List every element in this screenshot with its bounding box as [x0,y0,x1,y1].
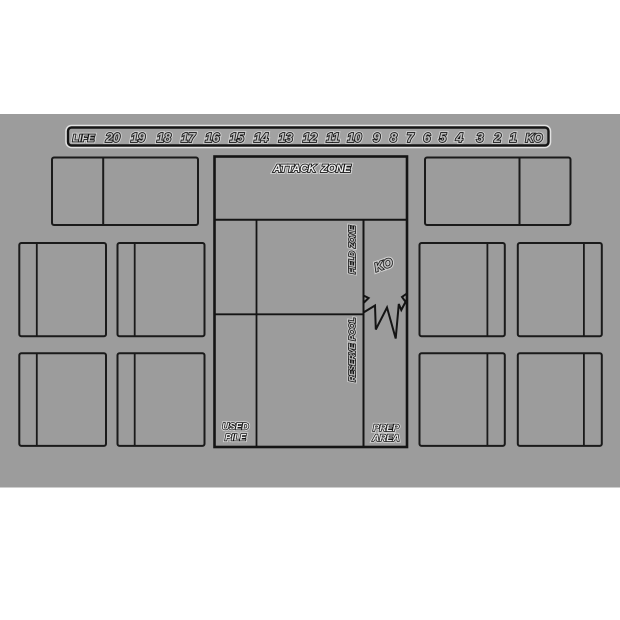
svg-text:18: 18 [157,130,172,145]
svg-text:FIELD ZONE: FIELD ZONE [347,225,357,273]
svg-text:KO: KO [525,133,542,145]
svg-text:20: 20 [105,130,121,145]
svg-text:10: 10 [347,130,362,145]
svg-text:3: 3 [476,130,484,145]
svg-text:RESERVE POOL: RESERVE POOL [347,318,357,382]
svg-text:4: 4 [455,130,464,145]
svg-text:15: 15 [230,130,245,145]
svg-text:17: 17 [181,130,196,145]
svg-text:13: 13 [278,130,293,145]
svg-text:6: 6 [423,130,431,145]
svg-text:USED: USED [222,422,249,433]
svg-text:ATTACK ZONE: ATTACK ZONE [272,163,351,175]
svg-text:8: 8 [390,130,398,145]
svg-text:14: 14 [254,130,269,145]
svg-text:16: 16 [205,130,220,145]
svg-text:1: 1 [510,130,517,145]
svg-text:9: 9 [373,130,381,145]
svg-text:11: 11 [326,130,340,145]
svg-text:PILE: PILE [225,433,247,444]
svg-text:12: 12 [303,130,318,145]
svg-text:AREA: AREA [371,433,399,444]
svg-text:LIFE: LIFE [72,133,95,144]
svg-text:19: 19 [131,130,146,145]
svg-text:7: 7 [407,130,415,145]
svg-text:5: 5 [439,130,447,145]
svg-text:2: 2 [493,130,502,145]
